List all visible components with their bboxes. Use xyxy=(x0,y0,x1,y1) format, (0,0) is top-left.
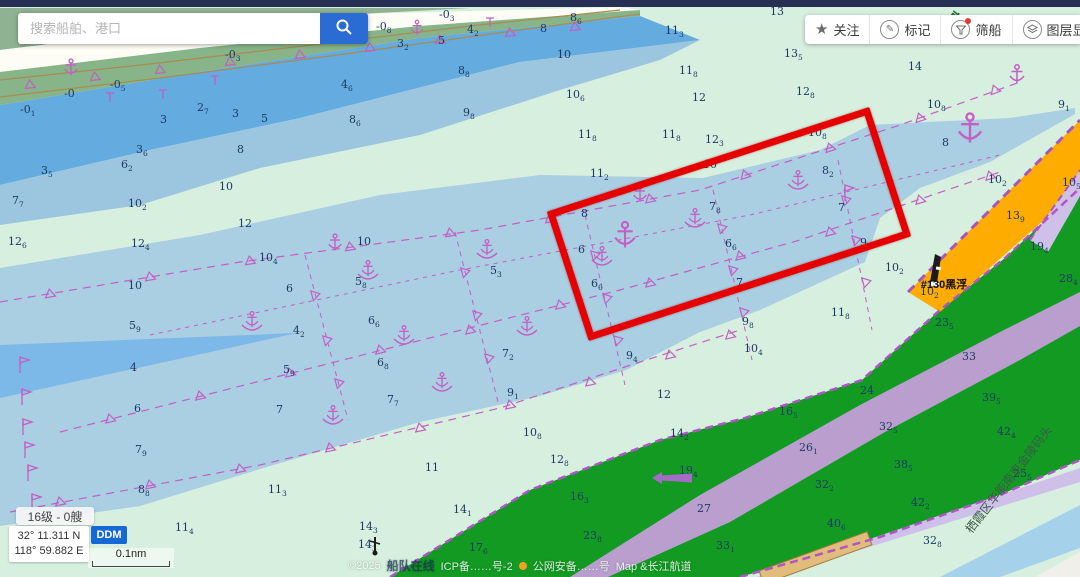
depth-sounding: 11 xyxy=(425,461,439,474)
funnel-icon xyxy=(951,20,970,39)
depth-sounding: 10 xyxy=(557,48,571,61)
depth-sounding: 8 xyxy=(237,143,244,156)
depth-sounding: 14 xyxy=(908,60,922,73)
depth-sounding: 7 xyxy=(276,403,283,416)
follow-button[interactable]: ★ 关注 xyxy=(805,15,869,44)
depth-sounding: 8 xyxy=(540,22,547,35)
depth-sounding: 12 xyxy=(657,388,671,401)
map-toolbar: ★ 关注 ✎ 标记 筛船 图层显示 xyxy=(805,15,1080,44)
copyright-line: ©2025 船队在线 ICP备……号-2 公网安备……号 Map &长江航道 xyxy=(348,557,968,574)
zoom-level-badge: 16级 - 0艘 xyxy=(16,507,94,525)
star-icon: ★ xyxy=(815,22,828,37)
depth-sounding: 27 xyxy=(697,502,711,515)
copyright-year: ©2025 xyxy=(348,560,381,572)
depth-sounding: 10 xyxy=(357,235,371,248)
depth-sounding: 12 xyxy=(238,217,252,230)
filter-ships-label: 筛船 xyxy=(975,20,1001,39)
depth-sounding: 8 xyxy=(942,136,949,149)
depth-sounding: 12 xyxy=(692,91,706,104)
psb-badge-icon xyxy=(519,562,527,570)
mark-label: 标记 xyxy=(904,20,930,39)
scale-bracket xyxy=(92,561,170,567)
scale-value: 0.1nm xyxy=(88,548,174,561)
depth-sounding: -0 xyxy=(64,87,75,100)
notification-dot xyxy=(965,18,971,24)
pencil-icon: ✎ xyxy=(880,20,899,39)
icp-number: ICP备……号-2 xyxy=(441,558,513,574)
depth-sounding: 5 xyxy=(261,112,268,125)
mark-button[interactable]: ✎ 标记 xyxy=(869,15,940,44)
latitude-value: 32° 11.311 N xyxy=(18,529,81,544)
depth-sounding: 3 xyxy=(160,113,167,126)
nautical-chart[interactable]: -01-0-05-03-08-0332735468632542886889810… xyxy=(0,0,1080,577)
layers-button[interactable]: 图层显示 xyxy=(1012,15,1080,44)
layers-icon xyxy=(1023,20,1042,39)
depth-sounding: 3 xyxy=(232,107,239,120)
place-label: #130黑浮 xyxy=(921,277,967,291)
coord-format-button[interactable]: DDM xyxy=(91,526,127,544)
chart-app: -01-0-05-03-08-0332735468632542886889810… xyxy=(0,0,1080,577)
psb-number: 公网安备……号 xyxy=(533,558,610,574)
search-button[interactable] xyxy=(320,13,368,44)
depth-sounding: 6 xyxy=(286,282,293,295)
search-icon xyxy=(335,18,353,39)
depth-sounding: 5 xyxy=(438,34,445,47)
layers-label: 图层显示 xyxy=(1047,20,1080,39)
depth-sounding: 4 xyxy=(130,361,137,374)
search-bar xyxy=(18,13,368,44)
search-input[interactable] xyxy=(18,13,320,44)
depth-sounding: 10 xyxy=(128,279,142,292)
coordinate-readout: 32° 11.311 N 118° 59.882 E xyxy=(9,526,89,562)
map-credit: Map &长江航道 xyxy=(616,558,692,574)
longitude-value: 118° 59.882 E xyxy=(14,544,83,559)
depth-sounding: 24 xyxy=(860,384,874,397)
filter-ships-button[interactable]: 筛船 xyxy=(940,15,1011,44)
follow-label: 关注 xyxy=(833,20,859,39)
window-top-strip xyxy=(0,0,1080,7)
depth-sounding: 33 xyxy=(962,350,976,363)
scale-bar: 0.1nm xyxy=(88,548,174,568)
depth-sounding: 10 xyxy=(219,180,233,193)
depth-sounding: 6 xyxy=(134,402,141,415)
brand-watermark: 船队在线 xyxy=(387,557,435,574)
